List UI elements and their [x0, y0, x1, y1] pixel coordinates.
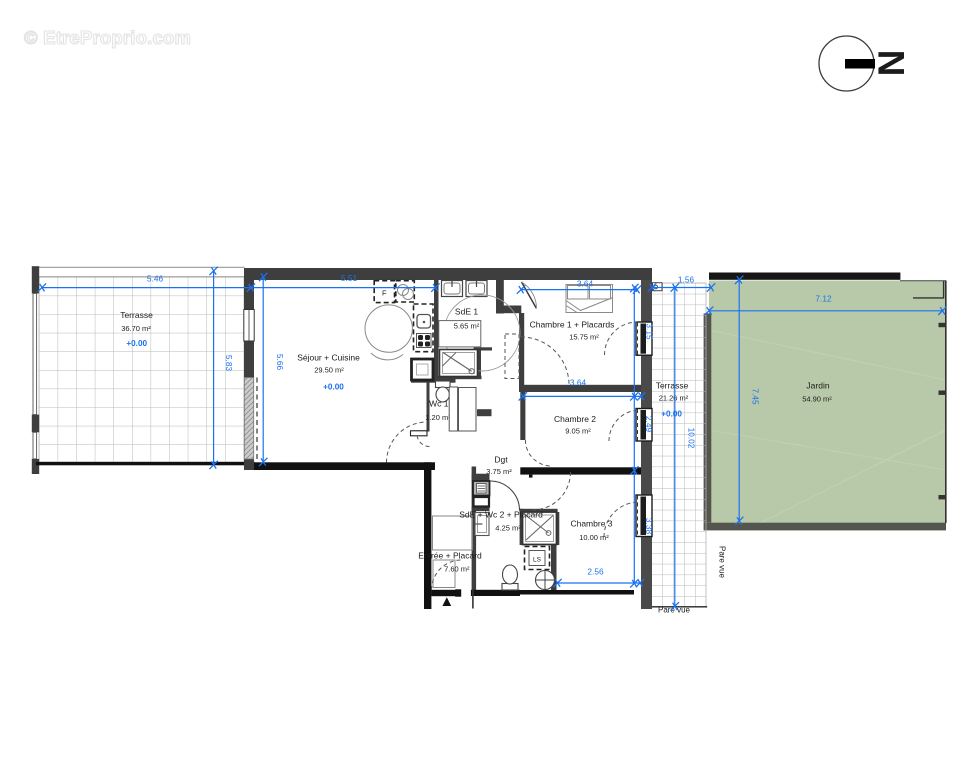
svg-text:5.65 m²: 5.65 m²	[454, 322, 480, 331]
svg-text:N: N	[871, 50, 912, 77]
svg-text:Entrée + Placard: Entrée + Placard	[418, 551, 482, 561]
svg-text:3.38: 3.38	[644, 518, 654, 535]
svg-text:Dgt: Dgt	[494, 455, 508, 465]
svg-text:5.51: 5.51	[341, 273, 358, 283]
svg-text:9.05 m²: 9.05 m²	[565, 427, 591, 436]
svg-text:5.83: 5.83	[224, 355, 234, 372]
svg-text:7.45: 7.45	[751, 388, 761, 405]
svg-text:SdE 1: SdE 1	[455, 307, 478, 317]
svg-text:© EtreProprio.com: © EtreProprio.com	[24, 27, 191, 48]
svg-text:Chambre 3: Chambre 3	[570, 519, 612, 529]
svg-text:LS: LS	[533, 557, 542, 564]
svg-text:1.56: 1.56	[678, 274, 695, 284]
svg-text:2.49: 2.49	[644, 416, 654, 433]
svg-text:Terrasse: Terrasse	[120, 310, 153, 320]
svg-text:3.64: 3.64	[570, 377, 587, 387]
svg-text:15.75 m²: 15.75 m²	[569, 333, 599, 342]
svg-text:+0.00: +0.00	[323, 383, 344, 392]
svg-text:Séjour + Cuisine: Séjour + Cuisine	[297, 353, 360, 363]
svg-text:21.26 m²: 21.26 m²	[659, 394, 689, 403]
svg-text:SdE + Wc 2 + Placard: SdE + Wc 2 + Placard	[459, 510, 543, 520]
svg-text:3.64: 3.64	[577, 279, 594, 289]
svg-text:54.90 m²: 54.90 m²	[802, 395, 832, 404]
svg-text:+0.00: +0.00	[661, 410, 682, 419]
svg-text:Chambre 1 + Placards: Chambre 1 + Placards	[530, 320, 615, 330]
svg-text:+0.00: +0.00	[126, 339, 147, 348]
svg-text:10.02: 10.02	[687, 428, 697, 449]
svg-text:10.00 m²: 10.00 m²	[579, 533, 609, 542]
svg-text:1.20 m²: 1.20 m²	[425, 413, 451, 422]
svg-text:Jardin: Jardin	[806, 381, 829, 391]
svg-text:7.60 m²: 7.60 m²	[444, 565, 470, 574]
svg-text:F: F	[382, 289, 387, 298]
svg-text:7.12: 7.12	[815, 294, 832, 304]
svg-text:Pare vue: Pare vue	[718, 546, 727, 579]
svg-text:3.15: 3.15	[645, 323, 655, 340]
svg-text:4.25 m²: 4.25 m²	[495, 524, 521, 533]
svg-text:5.46: 5.46	[147, 274, 164, 284]
svg-text:Terrasse: Terrasse	[656, 381, 689, 391]
svg-text:Chambre 2: Chambre 2	[554, 414, 596, 424]
svg-text:36.70 m²: 36.70 m²	[121, 324, 151, 333]
svg-text:5.66: 5.66	[275, 354, 285, 371]
svg-text:2.56: 2.56	[587, 566, 604, 576]
svg-text:Wc 1: Wc 1	[429, 399, 449, 409]
svg-text:29.50 m²: 29.50 m²	[314, 366, 344, 375]
svg-text:3.75 m²: 3.75 m²	[486, 467, 512, 476]
